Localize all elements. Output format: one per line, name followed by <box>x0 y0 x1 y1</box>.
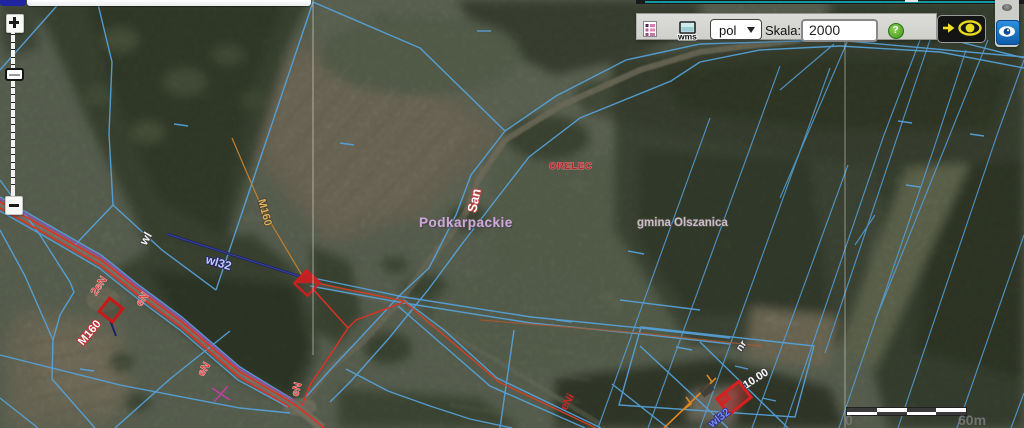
svg-text:wms: wms <box>677 32 697 42</box>
svg-text:Podkarpackie: Podkarpackie <box>419 215 513 230</box>
svg-text:gmina Olszanica: gmina Olszanica <box>637 217 728 229</box>
svg-text:ORELEC: ORELEC <box>549 161 592 172</box>
